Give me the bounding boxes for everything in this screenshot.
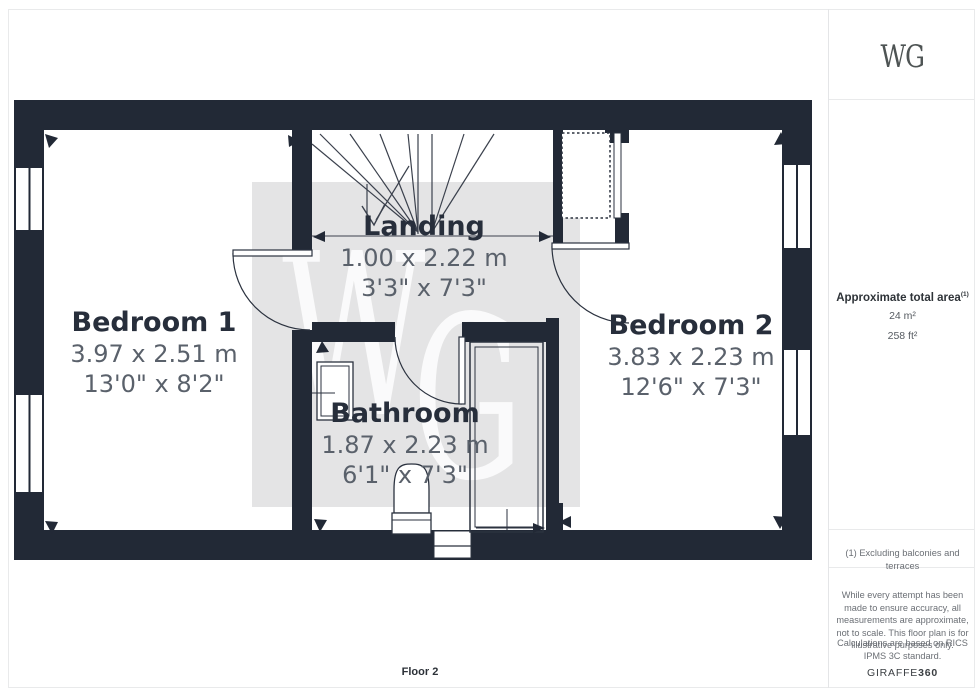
sidebar: WG Approximate total area(1) 24 m² 258 f… [829, 9, 976, 688]
floorplan-page: W G [0, 0, 980, 693]
bathroom-name: Bathroom [321, 397, 488, 430]
wall-top [14, 100, 812, 130]
wall-bedroom1-lower [292, 330, 312, 530]
arrow-bedroom1-top-left [45, 134, 58, 148]
arrow-bathroom-top [316, 341, 329, 353]
bathroom-metric: 1.87 x 2.23 m [321, 430, 488, 460]
cupboard-dashed-outline [562, 133, 610, 218]
area-footnote-marker: (1) [961, 291, 969, 298]
arrow-landing-right [539, 231, 551, 242]
bedroom1-label: Bedroom 1 3.97 x 2.51 m 13'0" x 8'2" [70, 306, 237, 399]
bedroom1-name: Bedroom 1 [70, 306, 237, 339]
bedroom2-label: Bedroom 2 3.83 x 2.23 m 12'6" x 7'3" [607, 309, 774, 402]
window-left-lower [16, 395, 42, 492]
landing-imperial: 3'3" x 7'3" [340, 273, 507, 303]
area-metric: 24 m² [829, 306, 976, 326]
bedroom2-metric: 3.83 x 2.23 m [607, 342, 774, 372]
landing-name: Landing [340, 210, 507, 243]
bathroom-door-arc [395, 337, 462, 404]
window-right-upper [784, 165, 810, 248]
floor-label: Floor 2 [370, 666, 470, 678]
cupboard-panel [614, 133, 621, 218]
arrow-landing-left [313, 231, 325, 242]
bedroom1-metric: 3.97 x 2.51 m [70, 339, 237, 369]
bathroom-door-leaf [459, 337, 465, 404]
standard-note: Calculations are based on RICS IPMS 3C s… [836, 637, 969, 662]
bedroom2-imperial: 12'6" x 7'3" [607, 372, 774, 402]
bedroom1-imperial: 13'0" x 8'2" [70, 369, 237, 399]
cupboard [562, 133, 621, 218]
bathroom-imperial: 6'1" x 7'3" [321, 460, 488, 490]
bedroom1-door-leaf [233, 250, 312, 256]
brand-name: GIRAFFE [867, 667, 918, 679]
bathroom-label: Bathroom 1.87 x 2.23 m 6'1" x 7'3" [321, 397, 488, 490]
bedroom1-door-arc [233, 253, 310, 330]
landing-label: Landing 1.00 x 2.22 m 3'3" x 7'3" [340, 210, 507, 303]
wall-bathroom-top-right [462, 322, 547, 342]
bedroom2-door-leaf [552, 243, 629, 249]
wall-bathroom-bedroom2 [546, 318, 559, 530]
wall-bathroom-top-left [312, 322, 395, 342]
window-bathroom-bottom [434, 531, 471, 558]
window-right-lower [784, 350, 810, 435]
wall-bedroom1-upper [292, 128, 312, 253]
brand-suffix: 360 [918, 667, 938, 679]
area-footnote: (1) Excluding balconies and terraces [836, 547, 969, 572]
giraffe360-brand: GIRAFFE360 [829, 667, 976, 679]
area-title: Approximate total area(1) [829, 287, 976, 306]
wall-bathroom-bedroom2-stub [546, 503, 563, 530]
wg-logo: WG [829, 39, 976, 75]
landing-metric: 1.00 x 2.22 m [340, 243, 507, 273]
area-summary: Approximate total area(1) 24 m² 258 ft² [829, 287, 976, 346]
area-imperial: 258 ft² [829, 326, 976, 346]
bedroom2-name: Bedroom 2 [607, 309, 774, 342]
window-left-upper [16, 168, 42, 230]
